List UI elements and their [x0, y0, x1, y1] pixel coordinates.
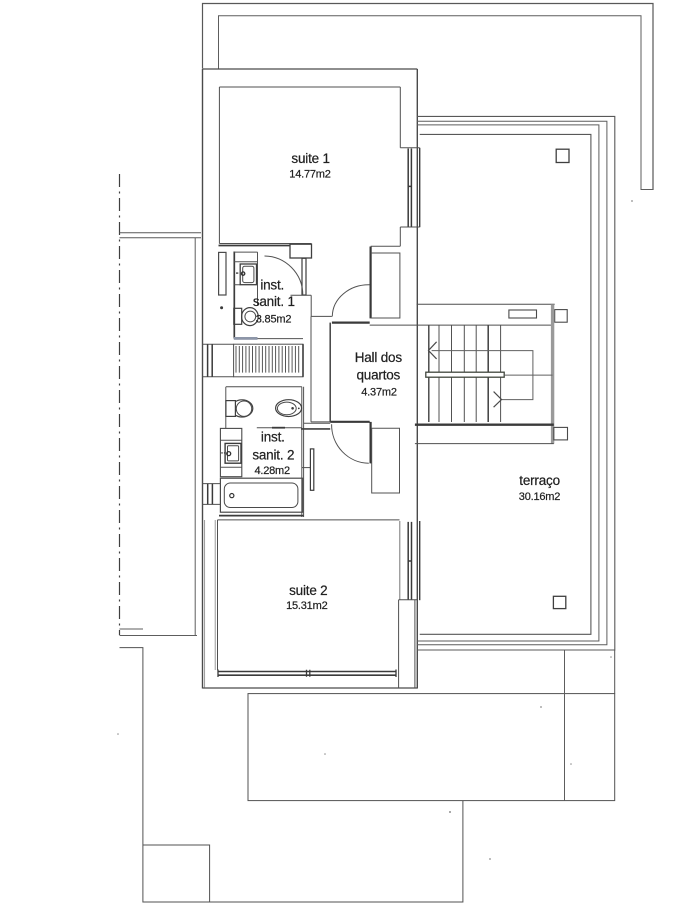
- svg-text:sanit. 2: sanit. 2: [252, 447, 294, 462]
- svg-text:sanit. 1: sanit. 1: [253, 294, 295, 309]
- svg-text:terraço: terraço: [519, 473, 560, 488]
- svg-text:inst.: inst.: [260, 278, 284, 293]
- svg-text:inst.: inst.: [261, 430, 285, 445]
- svg-text:14.77m2: 14.77m2: [289, 168, 330, 180]
- svg-text:3.85m2: 3.85m2: [256, 314, 292, 326]
- svg-text:30.16m2: 30.16m2: [519, 491, 560, 503]
- svg-text:suite 2: suite 2: [289, 583, 327, 598]
- svg-text:4.37m2: 4.37m2: [361, 386, 397, 398]
- svg-text:suite 1: suite 1: [291, 151, 329, 166]
- svg-text:Hall dos: Hall dos: [355, 350, 403, 365]
- svg-text:15.31m2: 15.31m2: [286, 600, 327, 612]
- svg-text:quartos: quartos: [356, 367, 400, 382]
- svg-text:4.28m2: 4.28m2: [254, 465, 290, 477]
